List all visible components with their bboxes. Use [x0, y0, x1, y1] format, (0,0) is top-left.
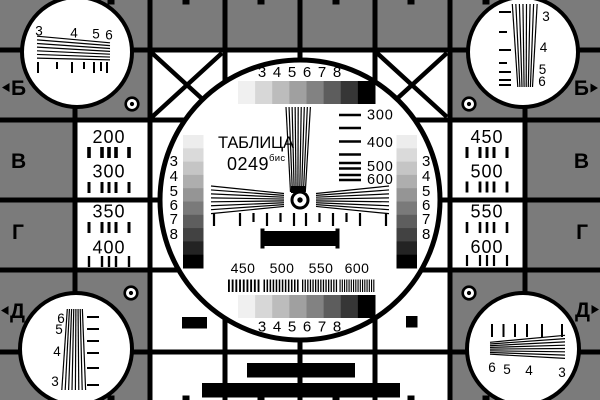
- staircase-step: [183, 215, 204, 229]
- staircase-step: [183, 188, 204, 202]
- gray-step-label: 6: [303, 64, 311, 81]
- gray-step-label: 5: [288, 64, 296, 81]
- burst-stripe: [355, 280, 356, 293]
- burst-stripe: [371, 280, 372, 293]
- staircase-step: [183, 148, 204, 162]
- right-column-value: 600: [470, 237, 503, 257]
- burst-stripe: [302, 280, 303, 293]
- line-group-bar: [87, 147, 91, 158]
- burst-stripe: [362, 280, 363, 293]
- line-group-bar: [493, 182, 496, 193]
- line-group-bar: [466, 222, 469, 233]
- burst-stripe: [307, 280, 308, 293]
- line-group-bar: [88, 182, 91, 193]
- burst-stripe: [276, 280, 278, 293]
- line-group-bar: [506, 222, 509, 233]
- burst-stripe: [235, 280, 237, 293]
- staircase-step: [397, 148, 418, 162]
- burst-stripe: [346, 280, 347, 293]
- burst-freq-label: 500: [270, 260, 295, 276]
- line-group-bar: [115, 256, 117, 267]
- corner-wedge-label: 5: [55, 322, 63, 337]
- corner-wedge-label: 6: [105, 28, 113, 43]
- grayscale-step: [307, 81, 325, 104]
- black-marker: [406, 316, 418, 328]
- row-letter-left: Д: [10, 300, 25, 323]
- burst-stripe: [267, 280, 269, 293]
- line-group-bar: [101, 256, 103, 267]
- burst-stripe: [310, 280, 311, 293]
- burst-stripe: [294, 280, 296, 293]
- gray-step-label: 8: [333, 319, 341, 336]
- line-group-bar: [486, 222, 489, 233]
- line-group-bar: [128, 256, 130, 267]
- burst-stripe: [318, 280, 319, 293]
- burst-stripe: [264, 280, 266, 293]
- vwedge-label: 600: [367, 172, 394, 188]
- bullseye-center-dot: [297, 197, 302, 202]
- burst-stripe: [320, 280, 321, 293]
- burst-stripe: [353, 280, 354, 293]
- cut-digit-mark: [258, 396, 265, 400]
- grayscale-step: [307, 295, 325, 318]
- burst-stripe: [291, 280, 293, 293]
- staircase-label: 8: [170, 226, 178, 243]
- grayscale-step: [341, 81, 359, 104]
- right-column-value: 550: [470, 202, 503, 222]
- grayscale-step: [289, 295, 307, 318]
- staircase-step: [183, 241, 204, 255]
- bottom-bar: [202, 383, 400, 398]
- line-group-bar: [128, 222, 131, 233]
- line-group-bar: [479, 182, 482, 193]
- test-card: ТАБЛИЦА 0249 бис 34567834567830040050060…: [0, 0, 600, 400]
- cut-digit-mark: [483, 396, 490, 400]
- line-group-bar: [115, 222, 118, 233]
- burst-stripe: [369, 280, 370, 293]
- line-group-bar: [101, 222, 104, 233]
- row-letter-right: Г: [576, 221, 588, 244]
- staircase-step: [397, 162, 418, 176]
- burst-stripe: [247, 280, 249, 293]
- staircase-step: [183, 162, 204, 176]
- burst-stripe: [364, 280, 365, 293]
- corner-circle: [22, 0, 132, 107]
- line-group-bar: [108, 222, 111, 233]
- gray-step-label: 5: [288, 319, 296, 336]
- line-group-bar: [101, 182, 104, 193]
- corner-wedge-label: 4: [540, 40, 548, 55]
- corner-wedge-label: 6: [488, 360, 496, 375]
- burst-stripe: [328, 280, 329, 293]
- staircase-step: [397, 255, 418, 269]
- vwedge-label: 400: [367, 135, 394, 151]
- bullseye-center-dot: [467, 291, 471, 295]
- burst-stripe: [331, 280, 332, 293]
- corner-wedge-label: 3: [35, 24, 43, 39]
- grayscale-step: [238, 295, 256, 318]
- burst-stripe: [349, 280, 350, 293]
- card-title: ТАБЛИЦА: [218, 134, 294, 152]
- line-group-bar: [479, 147, 482, 158]
- bullseye-center-dot: [130, 102, 134, 106]
- burst-stripe: [325, 280, 326, 293]
- gray-step-label: 3: [258, 319, 266, 336]
- line-group-bar: [107, 147, 111, 158]
- corner-wedge-label: 6: [538, 74, 546, 89]
- left-column-value: 400: [92, 238, 125, 258]
- cut-digit-mark: [258, 0, 265, 5]
- grayscale-step: [255, 81, 273, 104]
- grayscale-step: [255, 295, 273, 318]
- wedge-line: [75, 309, 76, 390]
- cut-digit-mark: [408, 396, 415, 400]
- grayscale-step: [358, 81, 376, 104]
- wedge-line: [78, 309, 79, 390]
- row-letter-right: В: [574, 150, 589, 173]
- corner-wedge-label: 4: [70, 26, 78, 41]
- line-group-bar: [486, 147, 489, 158]
- cut-digit-mark: [408, 0, 415, 5]
- staircase-step: [183, 202, 204, 216]
- line-group-bar: [127, 147, 131, 158]
- burst-stripe: [297, 280, 299, 293]
- staircase-step: [397, 135, 418, 149]
- staircase-step: [183, 228, 204, 242]
- burst-stripe: [288, 280, 290, 293]
- bullseye-center-dot: [129, 291, 133, 295]
- grayscale-step: [341, 295, 359, 318]
- definition-bar-cap: [336, 229, 340, 249]
- line-group-bar: [115, 182, 118, 193]
- corner-wedge-label: 5: [503, 362, 511, 377]
- line-group-bar: [88, 256, 90, 267]
- cut-digit-mark: [108, 0, 115, 5]
- burst-stripe: [254, 280, 256, 293]
- line-group-bar: [466, 147, 469, 158]
- burst-stripe: [270, 280, 272, 293]
- line-group-bar: [114, 147, 118, 158]
- burst-stripe: [360, 280, 361, 293]
- right-column-value: 500: [470, 162, 503, 182]
- line-group-bar: [128, 182, 131, 193]
- gray-step-label: 6: [303, 319, 311, 336]
- row-letter-left: В: [11, 150, 26, 173]
- corner-wedge-label: 4: [525, 363, 533, 378]
- burst-stripe: [367, 280, 368, 293]
- burst-stripe: [312, 280, 313, 293]
- wedge-line: [490, 349, 565, 350]
- burst-stripe: [344, 280, 345, 293]
- row-letter-right: Д: [575, 299, 590, 322]
- row-letter-right: Б: [574, 77, 589, 100]
- pattern-graphics: [0, 0, 600, 400]
- card-model: 0249: [227, 154, 269, 174]
- corner-wedge-label: 3: [542, 9, 550, 24]
- staircase-step: [397, 215, 418, 229]
- cut-digit-mark: [108, 396, 115, 400]
- burst-freq-label: 600: [345, 260, 370, 276]
- line-group-bar: [486, 182, 489, 193]
- row-letter-left: Г: [12, 221, 24, 244]
- line-group-bar: [466, 255, 468, 266]
- burst-stripe: [358, 280, 359, 293]
- card-model-suffix: бис: [269, 153, 285, 164]
- cut-digit-mark: [333, 0, 340, 5]
- grayscale-step: [238, 81, 256, 104]
- definition-bar: [262, 231, 337, 246]
- staircase-step: [397, 188, 418, 202]
- grayscale-step: [324, 295, 342, 318]
- gray-panel: [525, 200, 600, 270]
- cut-digit-mark: [483, 0, 490, 5]
- gray-step-label: 3: [258, 64, 266, 81]
- burst-stripe: [315, 280, 316, 293]
- black-marker: [182, 317, 207, 329]
- staircase-step: [183, 135, 204, 149]
- corner-wedge-label: 5: [92, 27, 100, 42]
- burst-stripe: [333, 280, 334, 293]
- line-group-bar: [493, 147, 496, 158]
- burst-stripe: [340, 280, 341, 293]
- staircase-step: [397, 175, 418, 189]
- burst-stripe: [351, 280, 352, 293]
- staircase-step: [397, 241, 418, 255]
- cut-digit-mark: [183, 0, 190, 5]
- grayscale-step: [289, 81, 307, 104]
- line-group-bar: [493, 222, 496, 233]
- corner-wedge-label: 3: [51, 374, 59, 389]
- line-group-bar: [108, 182, 111, 193]
- grayscale-step: [358, 295, 376, 318]
- gray-step-label: 4: [273, 64, 281, 81]
- gray-step-label: 7: [318, 64, 326, 81]
- staircase-step: [183, 255, 204, 269]
- left-column-value: 300: [92, 162, 125, 182]
- burst-stripe: [243, 280, 245, 293]
- right-column-value: 450: [470, 127, 503, 147]
- burst-stripe: [336, 280, 337, 293]
- line-group-bar: [108, 256, 110, 267]
- grayscale-step: [272, 295, 290, 318]
- burst-stripe: [232, 280, 234, 293]
- burst-stripe: [323, 280, 324, 293]
- burst-stripe: [285, 280, 287, 293]
- left-column-value: 350: [92, 202, 125, 222]
- burst-stripe: [250, 280, 252, 293]
- row-letter-left: Б: [11, 77, 26, 100]
- burst-stripe: [342, 280, 343, 293]
- left-column-value: 200: [92, 127, 125, 147]
- line-group-bar: [100, 147, 104, 158]
- corner-wedge-label: 3: [558, 365, 566, 380]
- burst-stripe: [239, 280, 241, 293]
- definition-bar-cap: [261, 229, 265, 249]
- line-group-bar: [506, 182, 509, 193]
- burst-stripe: [373, 280, 374, 293]
- cut-digit-mark: [183, 396, 190, 400]
- burst-stripe: [305, 280, 306, 293]
- burst-freq-label: 550: [309, 260, 334, 276]
- burst-freq-label: 450: [231, 260, 256, 276]
- staircase-step: [183, 175, 204, 189]
- burst-stripe: [258, 280, 260, 293]
- line-group-bar: [466, 182, 469, 193]
- grayscale-step: [272, 81, 290, 104]
- gray-step-label: 7: [318, 319, 326, 336]
- bottom-bar: [247, 363, 355, 378]
- bullseye-center-dot: [467, 102, 471, 106]
- staircase-step: [397, 202, 418, 216]
- burst-stripe: [279, 280, 281, 293]
- grayscale-step: [324, 81, 342, 104]
- staircase-step: [397, 228, 418, 242]
- gray-step-label: 8: [333, 64, 341, 81]
- test-card-svg: ТАБЛИЦА 0249 бис 34567834567830040050060…: [0, 0, 600, 400]
- line-group-bar: [479, 222, 482, 233]
- gray-step-label: 4: [273, 319, 281, 336]
- line-group-bar: [506, 147, 509, 158]
- line-group-bar: [506, 255, 508, 266]
- corner-wedge-label: 4: [53, 344, 61, 359]
- burst-stripe: [282, 280, 284, 293]
- wedge-convergence-block: [291, 186, 305, 193]
- burst-stripe: [273, 280, 275, 293]
- vwedge-label: 300: [367, 108, 394, 124]
- cut-digit-mark: [333, 396, 340, 400]
- line-group-bar: [88, 222, 91, 233]
- burst-stripe: [228, 280, 230, 293]
- staircase-label: 8: [422, 226, 430, 243]
